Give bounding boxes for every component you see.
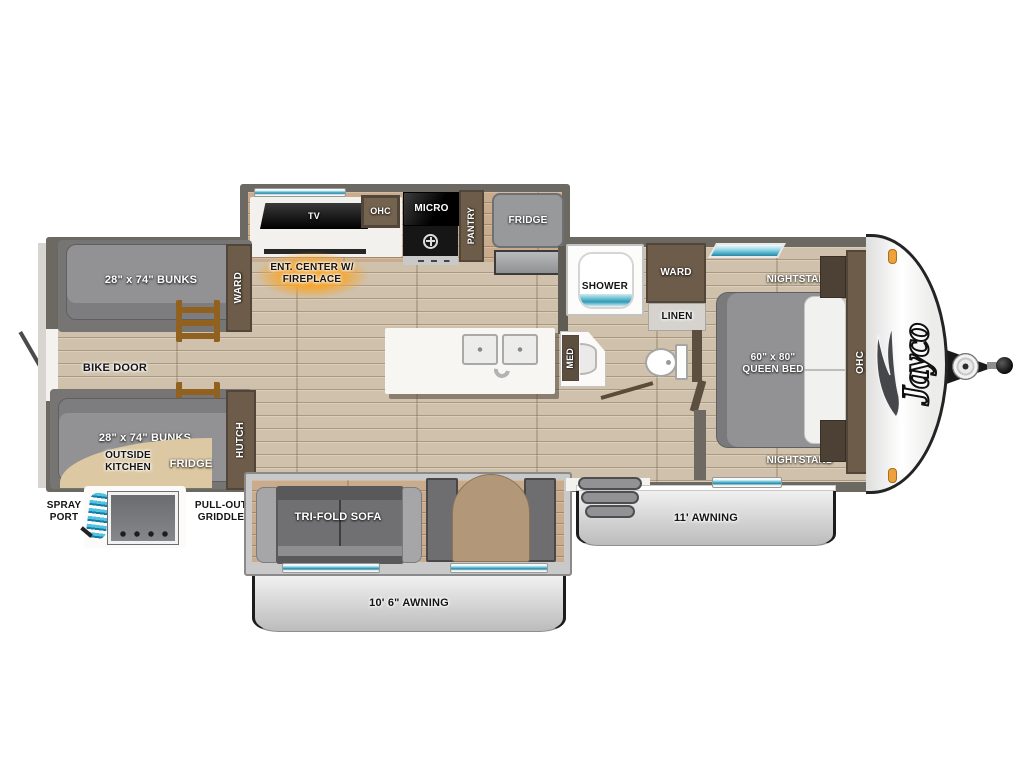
med-label: MED [565,348,575,369]
awning-bottom-label: 10' 6" AWNING [369,597,449,610]
range-cooktop [403,226,458,256]
island-sink-left [462,334,498,365]
jayco-logo-text: Jayco [899,325,933,406]
bunk-wardrobe: WARD [226,244,252,332]
nightstand-top [820,256,846,298]
bunk-ladder-top [176,300,220,342]
bedroom-entry-pillar [694,410,706,480]
medicine-cabinet: MED [562,335,579,381]
bath-sink [580,343,597,375]
spray-port-label: SPRAY PORT [42,500,86,523]
linen-cabinet: LINEN [648,303,706,331]
slide-window-left [282,563,380,573]
ohc-cabinet: OHC [361,195,400,228]
bunk-ward-label: WARD [233,272,245,303]
micro-label: MICRO [414,203,448,215]
shower-waterline [580,294,632,307]
ohc-label: OHC [370,206,391,216]
bath-bedroom-wall [692,330,702,382]
microwave: MICRO [403,192,460,226]
tv-label: TV [308,211,320,221]
toilet-bowl [645,348,677,377]
toilet-tank [675,344,688,380]
bath-wardrobe: WARD [646,243,706,303]
refrigerator: FRIDGE [492,193,564,248]
entry-step-1 [578,477,642,490]
marker-light-top [888,249,897,264]
linen-label: LINEN [662,311,693,323]
sofa-armrest-right [402,487,422,563]
queen-bed-label: 60" x 80" QUEEN BED [726,352,820,375]
slide-window-right [450,563,548,573]
outside-kitchen-label: OUTSIDE KITCHEN [84,450,172,473]
bedroom-window-bottom [712,477,782,488]
fridge-label: FRIDGE [509,215,548,227]
island-sink-right [502,334,538,365]
sofa-label: TRI-FOLD SOFA [270,511,406,524]
kitchen-window [254,188,346,197]
bedroom-window-top [708,243,786,258]
range-front [403,256,458,265]
ent-center-label: ENT. CENTER W/ FIREPLACE [248,262,376,285]
bath-ward-label: WARD [660,267,691,279]
tongue-jack-wheel [952,353,979,380]
sofa-seat [278,500,402,556]
entry-step-3 [585,505,635,518]
marker-light-bottom [888,468,897,483]
outside-fridge-label: FRIDGE [160,458,222,471]
nightstand-bottom [820,420,846,462]
awning-bottom: 10' 6" AWNING [252,576,566,632]
bike-door-label: BIKE DOOR [64,362,166,375]
entry-step-2 [581,491,639,504]
hitch-ball [996,357,1013,374]
sofa-armrest-left [256,487,278,563]
awning-right-label: 11' AWNING [674,512,738,525]
floorplan: TV OHC MICRO PANTRY FRIDGE ENT. CENTER W… [0,0,1024,768]
tv-screen: TV [260,203,368,229]
shower-label: SHOWER [564,281,646,293]
fridge-panel [494,250,564,275]
hutch-label: HUTCH [235,422,247,458]
jayco-logo: Jayco [867,290,939,440]
dinette-table [452,474,530,562]
pantry: PANTRY [459,190,484,262]
top-bunk-label: 28" x 74" BUNKS [76,274,226,287]
burner-icon [423,234,438,249]
pantry-label: PANTRY [466,207,476,244]
griddle-burner-dots [116,530,170,538]
toilet-flush-dot [666,360,671,365]
